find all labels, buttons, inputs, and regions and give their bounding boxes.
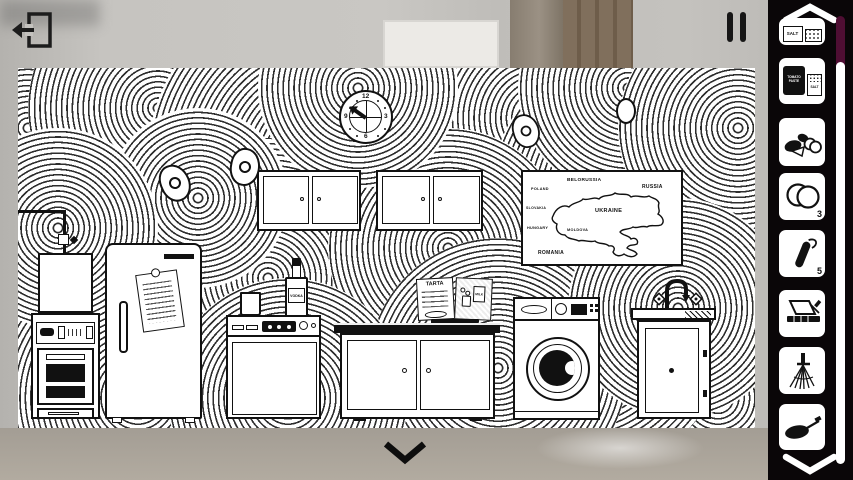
item-count-badge: 5 bbox=[817, 266, 822, 276]
wall-pipe bbox=[18, 210, 66, 213]
oven-handle bbox=[46, 354, 85, 360]
map-label-moldova: MOLDOVA bbox=[567, 228, 588, 233]
note-text-lines bbox=[143, 280, 177, 324]
map-label-russia: RUSSIA bbox=[642, 185, 663, 190]
stove-drawer bbox=[37, 408, 94, 419]
sidebar-item-cord[interactable]: 5 bbox=[779, 230, 825, 277]
salt-shaker-label: SALT bbox=[808, 82, 821, 92]
sink-cabinet[interactable] bbox=[637, 320, 711, 419]
wall-pipe bbox=[63, 210, 66, 256]
drainer-hatch bbox=[685, 311, 711, 318]
pause-button[interactable] bbox=[725, 12, 749, 44]
cup[interactable] bbox=[240, 292, 261, 316]
clock-3: 3 bbox=[384, 114, 388, 120]
wall-cabinet-left[interactable] bbox=[257, 170, 361, 231]
game-screen: { "hud": { "back_icon": "exit-door-arrow… bbox=[0, 0, 853, 480]
window bbox=[383, 20, 499, 68]
hidden-object-scene[interactable]: 12 3 6 9 BELORUSSIA RUSSIA POLAND SLOVAK… bbox=[18, 68, 755, 428]
map-label-poland: POLAND bbox=[531, 187, 549, 192]
cake-doodle bbox=[425, 310, 447, 318]
egg[interactable] bbox=[616, 98, 636, 124]
washer-door bbox=[526, 337, 590, 401]
counter-cabinet[interactable] bbox=[340, 333, 495, 419]
fridge-foot bbox=[185, 417, 195, 423]
range-hood[interactable] bbox=[38, 253, 93, 313]
salt-shaker-icon: SALT bbox=[807, 74, 822, 96]
map-label-slovakia: SLOVAKIA bbox=[526, 206, 546, 211]
expand-chevron-button[interactable] bbox=[382, 440, 428, 466]
dishwasher-panel bbox=[228, 317, 319, 337]
detergent-drawer bbox=[521, 305, 547, 314]
milk-carton: MILK bbox=[473, 286, 486, 303]
book-right-page: MILK bbox=[454, 277, 493, 321]
fridge-note[interactable] bbox=[135, 269, 185, 332]
sidebar-item-salt-packets[interactable]: SALT bbox=[779, 18, 825, 45]
countertop bbox=[334, 323, 500, 333]
whisk-icon bbox=[782, 351, 822, 391]
pause-icon bbox=[727, 12, 733, 42]
chevron-down-icon bbox=[786, 457, 834, 471]
pipe-valve[interactable] bbox=[58, 234, 69, 245]
sidebar-item-laptop-and-knife[interactable] bbox=[779, 290, 825, 337]
sidebar-item-whisk[interactable] bbox=[779, 347, 825, 394]
wall-cabinet-right[interactable] bbox=[376, 170, 483, 231]
bottle-label: VODKA bbox=[288, 288, 305, 303]
fridge-foot bbox=[112, 417, 122, 423]
book-stand bbox=[431, 319, 479, 323]
stove-knob bbox=[58, 326, 65, 339]
tomato-paste-jar-icon: TOMATO PASTE bbox=[783, 66, 805, 95]
sink-counter bbox=[631, 308, 716, 320]
tomato-paste-label: TOMATO PASTE bbox=[783, 76, 805, 83]
faucet[interactable] bbox=[651, 273, 703, 309]
pause-icon bbox=[740, 12, 746, 42]
washing-machine[interactable] bbox=[513, 297, 600, 420]
ukraine-map[interactable]: BELORUSSIA RUSSIA POLAND SLOVAKIA HUNGAR… bbox=[521, 170, 683, 266]
sidebar-scroll-down-button[interactable] bbox=[781, 452, 839, 476]
washer-panel bbox=[515, 299, 598, 321]
clock-6: 6 bbox=[364, 134, 368, 140]
rings-icon bbox=[782, 178, 822, 212]
stove[interactable] bbox=[31, 313, 100, 419]
back-button[interactable] bbox=[12, 10, 54, 50]
book-title: TARTA bbox=[417, 280, 452, 288]
stove-ticks bbox=[68, 329, 84, 336]
stove-knob bbox=[86, 326, 93, 339]
eggs-scoop-icon bbox=[782, 124, 822, 160]
wood-planks bbox=[563, 0, 633, 68]
sidebar-item-rings[interactable]: 3 bbox=[779, 173, 825, 220]
laptop-knife-icon bbox=[782, 298, 822, 330]
map-label-ukraine: UKRAINE bbox=[595, 209, 622, 214]
note-magnet bbox=[150, 268, 160, 278]
map-label-romania: ROMANIA bbox=[538, 251, 564, 256]
exit-door-arrow-icon bbox=[12, 14, 50, 46]
fridge-handle bbox=[119, 301, 128, 353]
map-label-hungary: HUNGARY bbox=[527, 226, 548, 231]
book-left-page: TARTA bbox=[416, 277, 455, 321]
scrollbar-thumb[interactable] bbox=[836, 62, 845, 464]
sidebar-item-eggs-and-scoop[interactable] bbox=[779, 118, 825, 166]
hand-scoop-icon bbox=[782, 410, 822, 444]
wall-clock[interactable]: 12 3 6 9 bbox=[339, 90, 393, 144]
map-label-belorussia: BELORUSSIA bbox=[567, 178, 601, 183]
oven-door bbox=[37, 348, 94, 405]
clock-9: 9 bbox=[344, 114, 348, 120]
fridge[interactable] bbox=[105, 243, 202, 419]
washer-display bbox=[571, 304, 587, 315]
dishwasher-door bbox=[232, 342, 317, 415]
concrete-pillar bbox=[510, 0, 563, 68]
salt-box-label: SALT bbox=[783, 26, 803, 42]
dishwasher[interactable] bbox=[226, 315, 321, 419]
sidebar-item-tomato-paste-and-salt[interactable]: TOMATO PASTE SALT bbox=[779, 58, 825, 104]
item-count-badge: 3 bbox=[817, 209, 822, 219]
salt-dots-icon bbox=[805, 29, 822, 42]
flour-bag bbox=[462, 296, 471, 307]
recipe-book[interactable]: TARTA MILK bbox=[415, 274, 495, 324]
stove-control-panel bbox=[36, 322, 95, 344]
sidebar-item-hand-scoop[interactable] bbox=[779, 404, 825, 450]
chevron-down-icon bbox=[386, 444, 424, 460]
